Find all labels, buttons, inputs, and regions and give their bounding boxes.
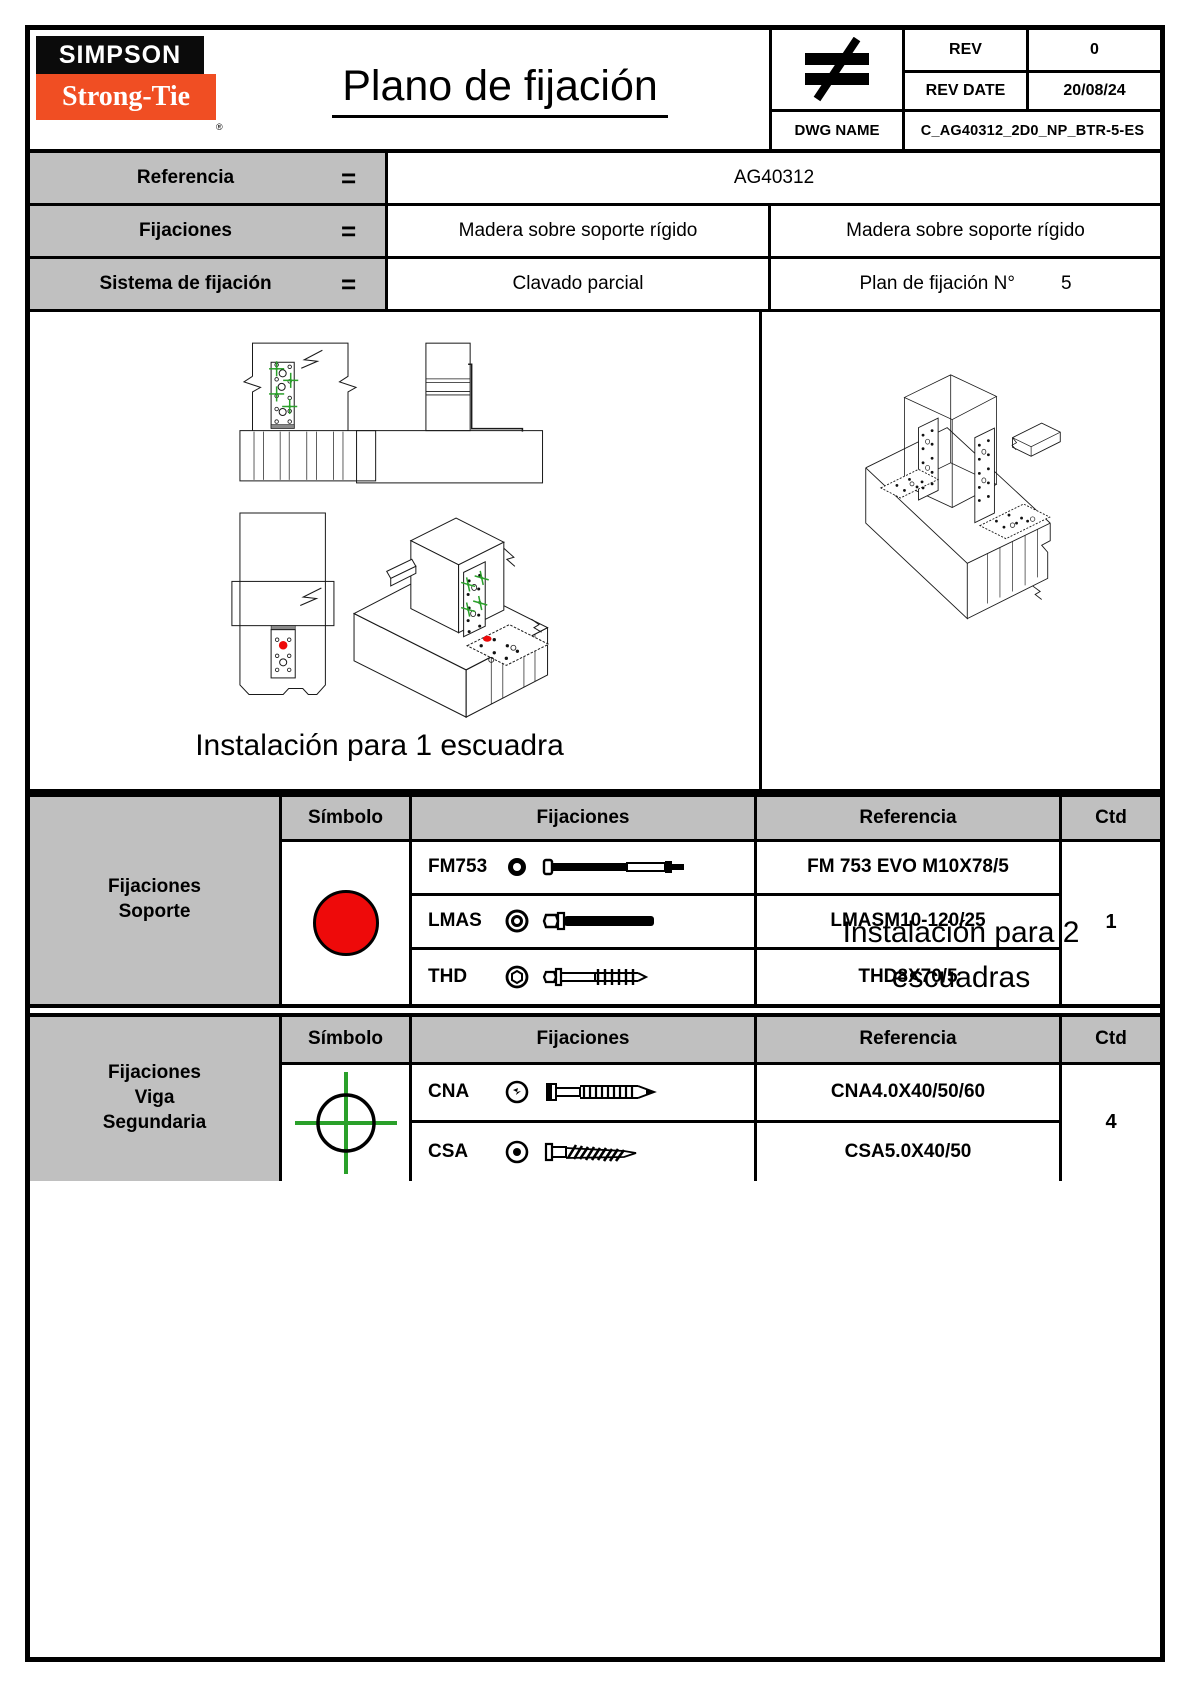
rev-date-value: 20/08/24	[1026, 70, 1160, 110]
csa-head-icon	[505, 1140, 529, 1164]
info-row-sistema: Sistema de fijación = Clavado parcial Pl…	[30, 259, 1160, 312]
fixing-row-lmas: LMAS	[412, 896, 757, 950]
fixing-row-cna: CNA	[412, 1065, 757, 1123]
simpson-strongtie-logo: SIMPSON Strong-Tie ®	[30, 30, 231, 149]
column-header-referencia: Referencia	[757, 1017, 1062, 1065]
fixing-row-thd: THD	[412, 950, 757, 1004]
equals-sign: =	[341, 269, 385, 300]
caption-one-bracket: Instalación para 1 escuadra	[30, 729, 759, 763]
column-header-fijaciones: Fijaciones	[412, 1017, 757, 1065]
csa-wood-screw-icon	[542, 1140, 692, 1164]
fixing-code: FM753	[428, 856, 492, 878]
referencia-label: Referencia	[30, 167, 341, 189]
fm753-anchor-bolt-icon	[542, 855, 692, 879]
title-block: SIMPSON Strong-Tie ® Plano de fijación R…	[30, 30, 1160, 153]
logo-strongtie-text: Strong-Tie	[36, 74, 216, 120]
drawing-two-brackets: Instalación para 2escuadras	[759, 312, 1160, 789]
column-header-referencia: Referencia	[757, 797, 1062, 842]
fixing-code: CSA	[428, 1141, 492, 1163]
fijaciones-value-right: Madera sobre soporte rígido	[771, 206, 1160, 256]
fixing-row-csa: CSA	[412, 1123, 757, 1181]
referencia-value: AG40312	[388, 153, 1160, 203]
fijaciones-value-left: Madera sobre soporte rígido	[388, 206, 771, 256]
fixing-code: LMAS	[428, 910, 492, 932]
logo-simpson-text: SIMPSON	[36, 36, 204, 74]
registered-mark: ®	[216, 122, 223, 132]
sistema-label: Sistema de fijación	[30, 273, 341, 295]
red-circle-symbol-icon	[313, 890, 379, 956]
secondary-beam-fixings-table: FijacionesVigaSegundaria Símbolo Fijacio…	[30, 1013, 1160, 1658]
one-bracket-views-drawing	[30, 312, 759, 789]
group-label-viga-segundaria: FijacionesVigaSegundaria	[30, 1017, 282, 1181]
lmas-head-icon	[505, 909, 529, 933]
reference-csa: CSA5.0X40/50	[757, 1123, 1062, 1181]
equals-sign: =	[341, 163, 385, 194]
green-crosshair-symbol-icon	[291, 1068, 401, 1178]
sistema-value: Clavado parcial	[388, 259, 771, 309]
sheet-frame: SIMPSON Strong-Tie ® Plano de fijación R…	[25, 25, 1165, 1662]
drawing-area: Instalación para 1 escuadra	[30, 312, 1160, 793]
fixing-row-fm753: FM753	[412, 842, 757, 896]
secondary-symbol-cell	[282, 1065, 412, 1181]
fixing-code: CNA	[428, 1081, 492, 1103]
cna-ring-nail-icon	[542, 1080, 692, 1104]
reference-cna: CNA4.0X40/50/60	[757, 1065, 1062, 1123]
dwg-name-label: DWG NAME	[772, 109, 902, 149]
plan-number-cell: Plan de fijación N° 5	[771, 259, 1160, 309]
info-row-referencia: Referencia = AG40312	[30, 153, 1160, 206]
fijaciones-label: Fijaciones	[30, 220, 341, 242]
fixing-code: THD	[428, 966, 492, 988]
column-header-simbolo: Símbolo	[282, 1017, 412, 1065]
rev-value: 0	[1026, 30, 1160, 70]
plan-number-label: Plan de fijación N°	[859, 273, 1014, 295]
revision-table: REV 0 REV DATE 20/08/24 DWG NAME C_AG403…	[769, 30, 1160, 149]
column-header-fijaciones: Fijaciones	[412, 797, 757, 842]
lmas-hex-bolt-icon	[542, 909, 692, 933]
dwg-name-value: C_AG40312_2D0_NP_BTR-5-ES	[902, 109, 1160, 149]
fixing-plan-sheet: SIMPSON Strong-Tie ® Plano de fijación R…	[0, 0, 1190, 1682]
support-symbol-cell	[282, 842, 412, 1004]
rev-label: REV	[902, 30, 1026, 70]
thd-concrete-screw-icon	[542, 965, 692, 989]
caption-two-brackets: Instalación para 2escuadras	[762, 910, 1160, 1000]
column-header-ctd: Ctd	[1062, 797, 1160, 842]
secondary-qty-value: 4	[1062, 1065, 1160, 1181]
fm753-head-icon	[505, 855, 529, 879]
thd-head-icon	[505, 965, 529, 989]
drawing-one-bracket: Instalación para 1 escuadra	[30, 312, 759, 789]
column-header-ctd: Ctd	[1062, 1017, 1160, 1065]
plan-number-value: 5	[1061, 273, 1072, 295]
group-label-soporte: FijacionesSoporte	[30, 797, 282, 1004]
equals-sign: =	[341, 216, 385, 247]
reference-fm753: FM 753 EVO M10X78/5	[757, 842, 1062, 896]
page-title: Plano de fijación	[332, 62, 668, 118]
two-brackets-iso-drawing	[762, 312, 1160, 789]
info-row-fijaciones: Fijaciones = Madera sobre soporte rígido…	[30, 206, 1160, 259]
cna-head-icon	[505, 1080, 529, 1104]
projection-symbol-icon	[772, 30, 902, 109]
rev-date-label: REV DATE	[902, 70, 1026, 110]
column-header-simbolo: Símbolo	[282, 797, 412, 842]
